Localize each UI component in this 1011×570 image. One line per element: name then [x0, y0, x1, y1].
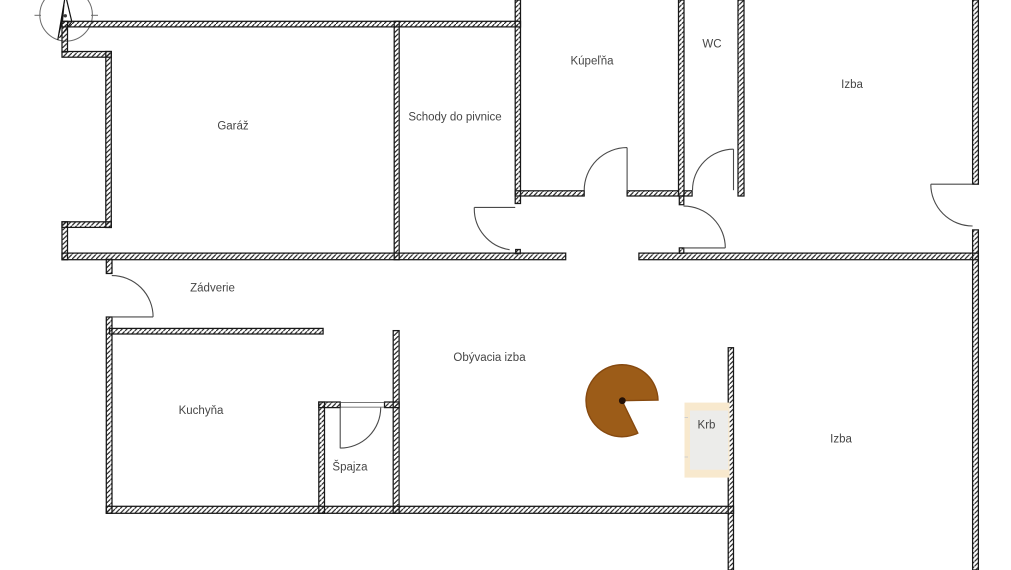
svg-text:Garáž: Garáž	[217, 121, 249, 133]
svg-text:Krb: Krb	[698, 420, 716, 432]
svg-text:Izba: Izba	[841, 79, 863, 91]
svg-text:Kúpeľňa: Kúpeľňa	[570, 56, 614, 68]
svg-text:Zádverie: Zádverie	[190, 283, 235, 295]
svg-text:WC: WC	[702, 39, 721, 51]
svg-text:Kuchyňa: Kuchyňa	[179, 405, 224, 417]
svg-text:Schody do pivnice: Schody do pivnice	[408, 112, 501, 124]
svg-text:Obývacia izba: Obývacia izba	[453, 352, 526, 364]
svg-text:Izba: Izba	[830, 434, 852, 446]
svg-text:Špajza: Špajza	[332, 461, 368, 474]
